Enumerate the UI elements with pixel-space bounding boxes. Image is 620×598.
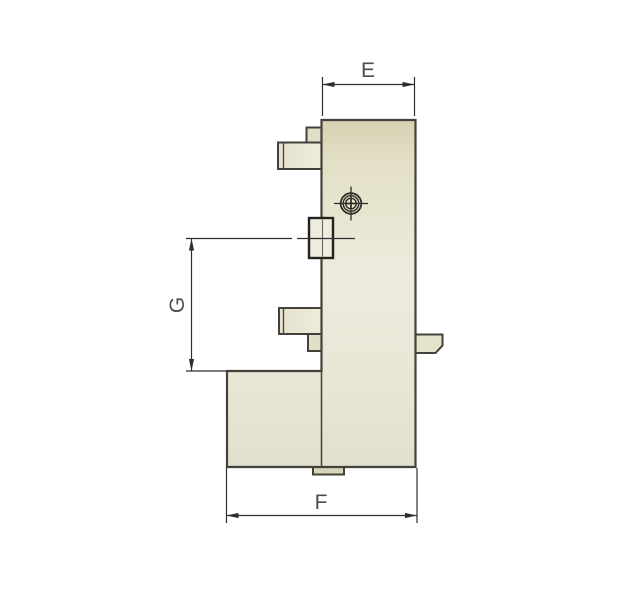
top-jaw-block [278, 143, 322, 170]
technical-drawing: E G F [0, 0, 620, 598]
dimension-e: E [323, 59, 415, 116]
lower-jaw-block [279, 308, 322, 334]
dim-e-label: E [361, 59, 375, 82]
dimension-f: F [227, 468, 418, 523]
lower-step [308, 334, 322, 351]
technical-drawing-page: E G F [0, 0, 620, 598]
dim-f-arrow-right [405, 513, 417, 518]
dim-e-arrow-left [323, 82, 335, 87]
dim-g-label: G [166, 297, 189, 313]
dim-g-arrow-bottom [189, 359, 194, 371]
part-geometry [227, 120, 443, 475]
right-tab [416, 335, 443, 354]
dim-g-arrow-top [189, 239, 194, 251]
dim-e-arrow-right [403, 82, 415, 87]
dim-f-arrow-left [227, 513, 239, 518]
dim-f-label: F [315, 491, 328, 514]
top-step [307, 128, 322, 143]
